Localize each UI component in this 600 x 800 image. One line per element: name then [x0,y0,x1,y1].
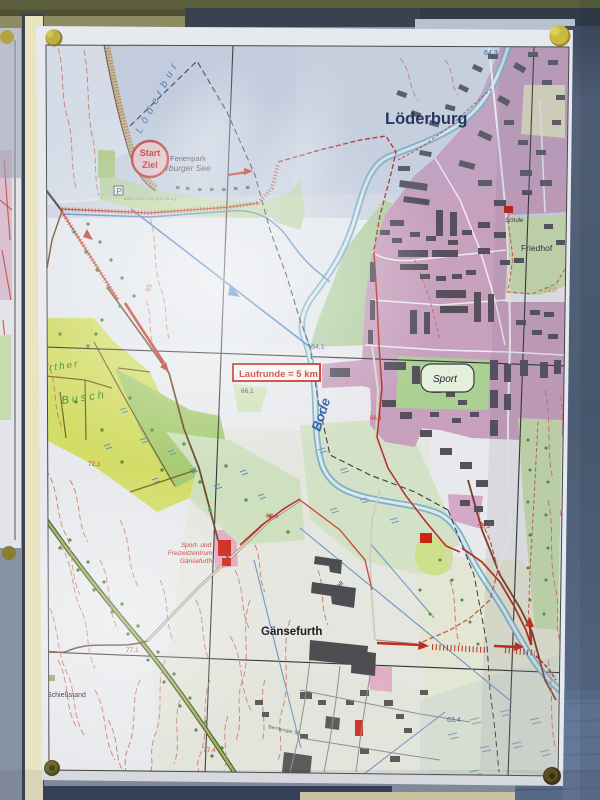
svg-text:Sport: Sport [433,374,458,385]
svg-text:72,1: 72,1 [88,461,101,468]
svg-text:68,6: 68,6 [266,513,279,520]
